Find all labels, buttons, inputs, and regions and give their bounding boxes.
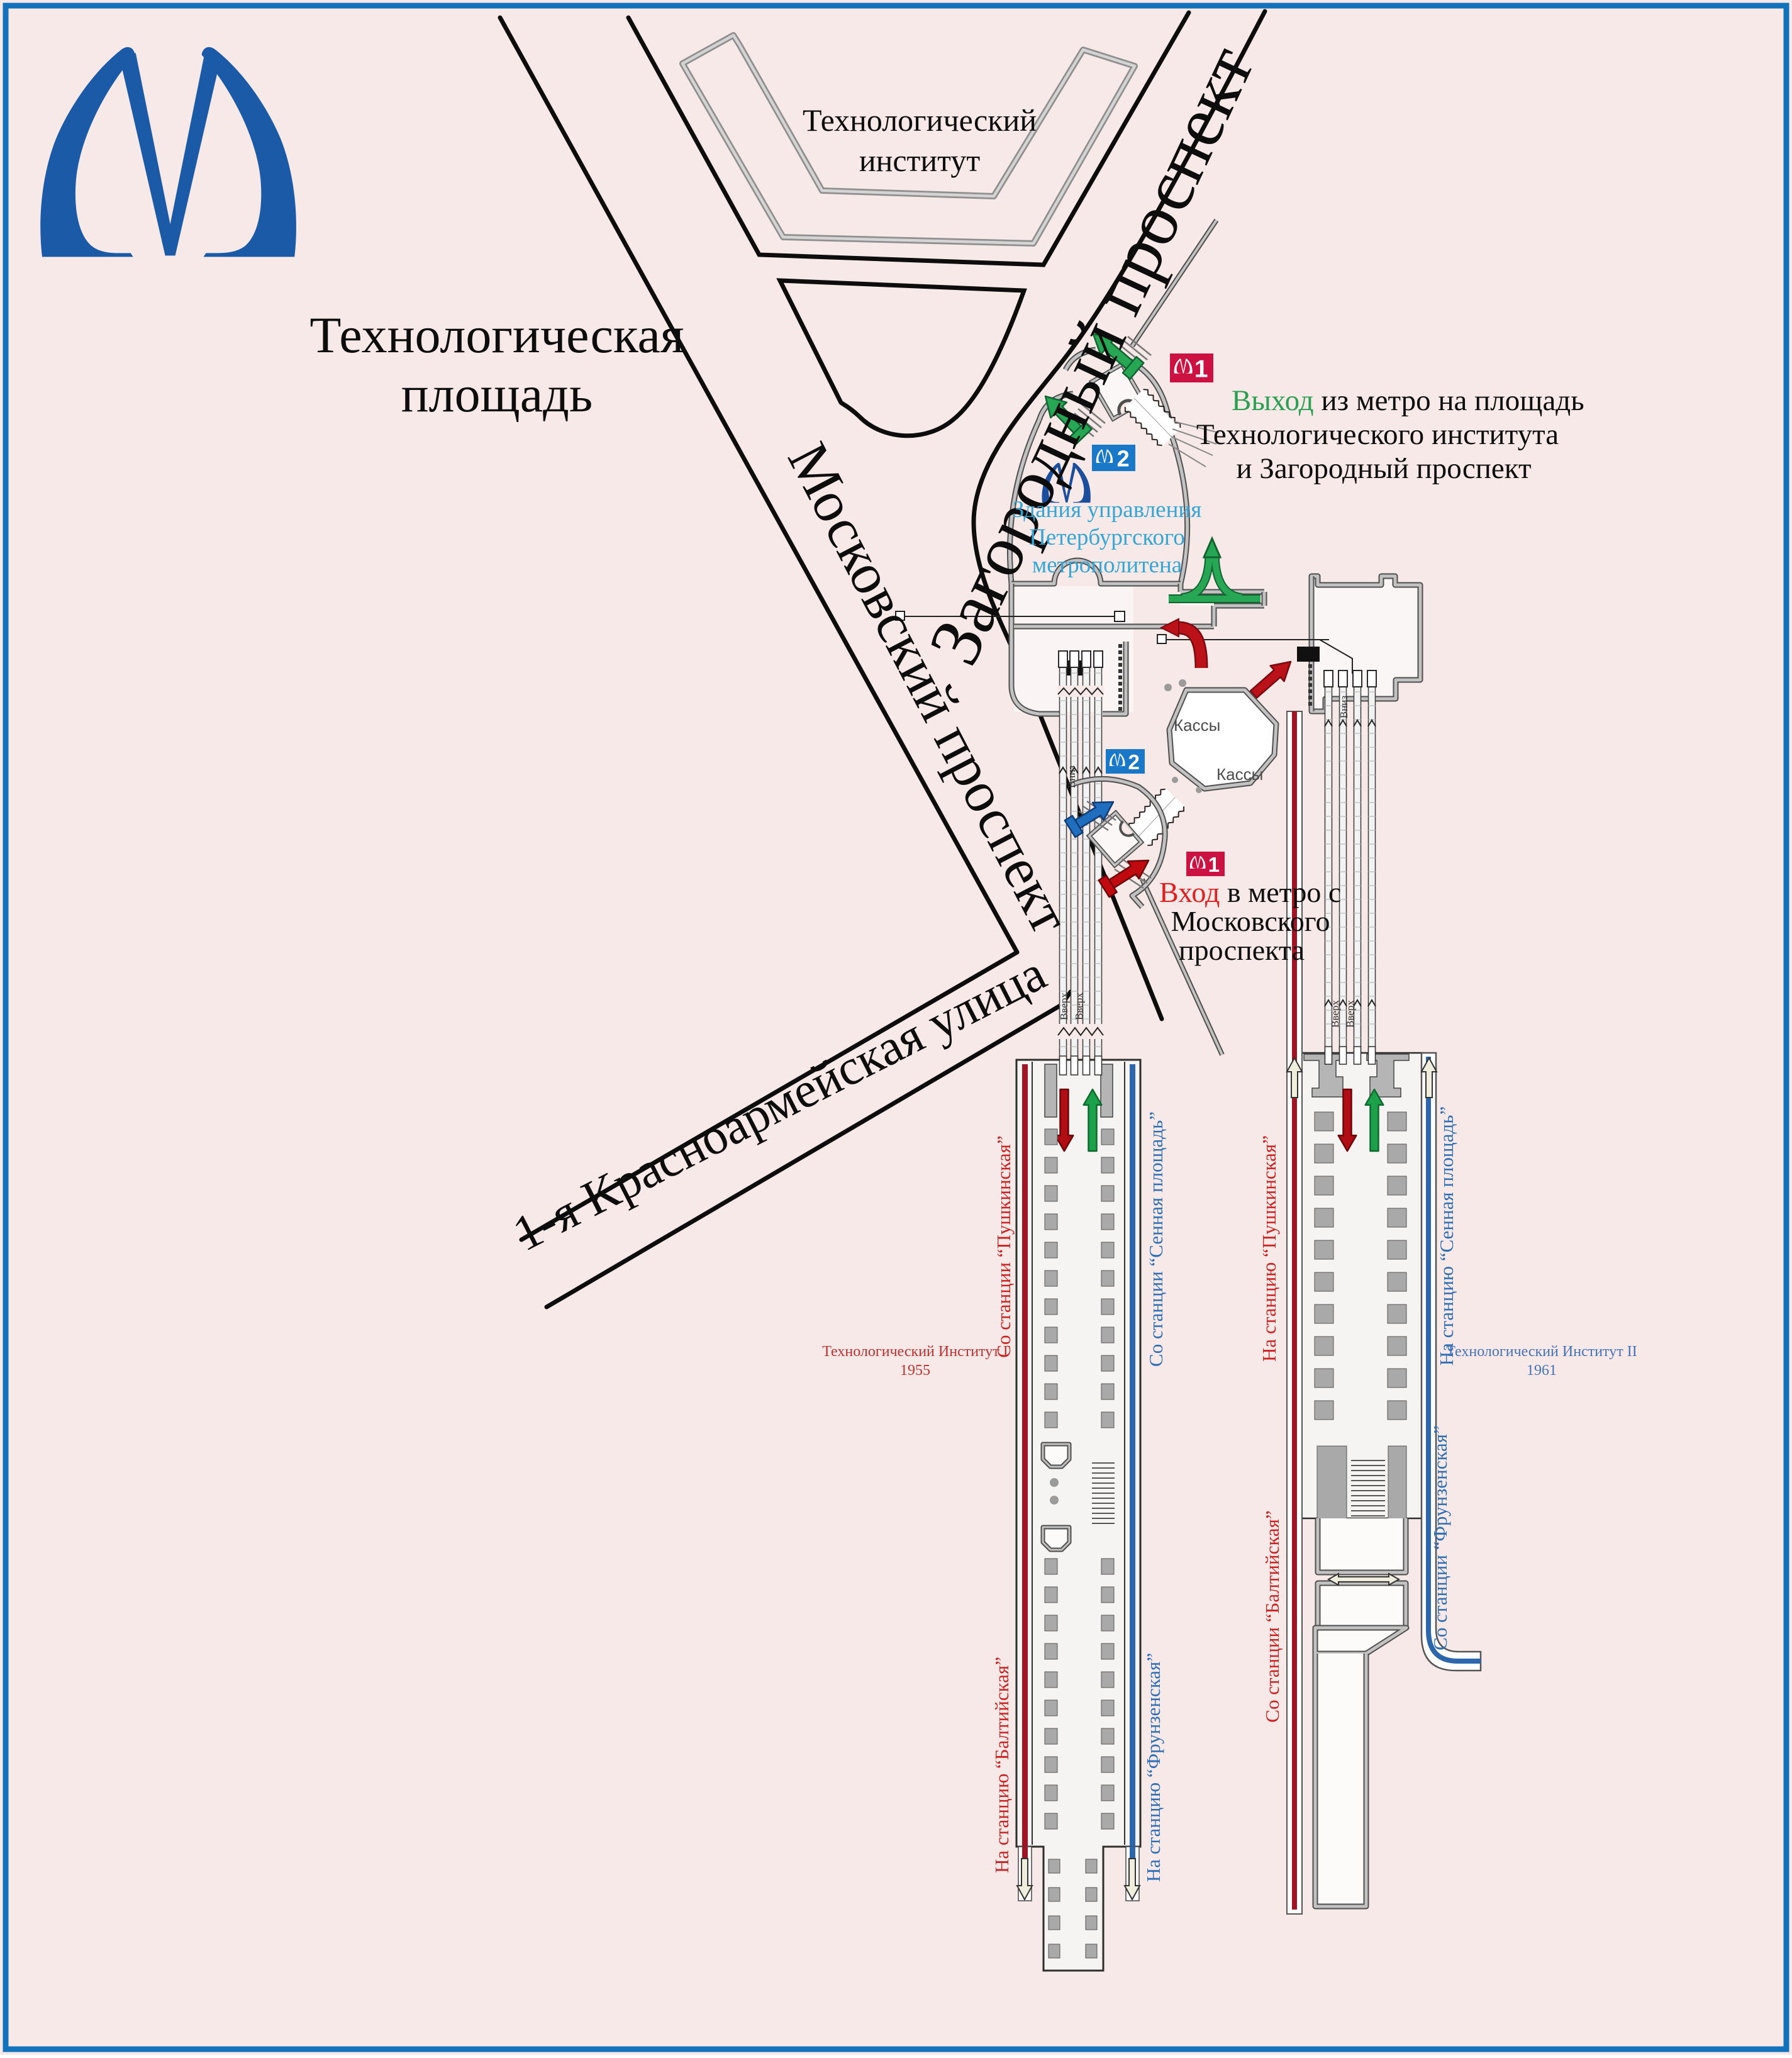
svg-text:Вниз: Вниз — [1066, 765, 1077, 789]
svg-text:1: 1 — [1194, 356, 1208, 383]
svg-text:Технологического института: Технологического института — [1196, 418, 1559, 451]
svg-text:Кассы: Кассы — [1216, 765, 1263, 784]
svg-text:Вверх: Вверх — [1058, 993, 1070, 1020]
svg-text:Технологическая: Технологическая — [309, 306, 684, 364]
svg-text:Петербургского: Петербургского — [1029, 525, 1185, 550]
svg-text:и Загородный проспект: и Загородный проспект — [1236, 452, 1531, 485]
svg-text:метрополитена: метрополитена — [1032, 552, 1182, 578]
svg-text:Технологический: Технологический — [803, 103, 1037, 138]
svg-text:институт: институт — [859, 143, 981, 178]
svg-text:Со станции “Пушкинская”: Со станции “Пушкинская” — [993, 1135, 1015, 1357]
svg-text:площадь: площадь — [401, 365, 593, 423]
svg-text:Со станции “Балтийская”: Со станции “Балтийская” — [1261, 1510, 1283, 1722]
svg-text:Выход из метро на площадь: Выход из метро на площадь — [1232, 384, 1584, 417]
svg-text:Со станции “Сенная площадь”: Со станции “Сенная площадь” — [1145, 1111, 1167, 1367]
svg-text:Вверх: Вверх — [1344, 1000, 1356, 1028]
svg-text:Московского: Московского — [1171, 905, 1330, 937]
svg-text:На станцию “Сенная площадь”: На станцию “Сенная площадь” — [1435, 1106, 1457, 1366]
svg-text:Кассы: Кассы — [1174, 716, 1220, 735]
svg-text:2: 2 — [1128, 750, 1139, 774]
svg-text:проспекта: проспекта — [1179, 934, 1305, 966]
svg-text:Со станции “Фрунзенская”: Со станции “Фрунзенская” — [1429, 1425, 1451, 1650]
svg-text:На станцию “Пушкинская”: На станцию “Пушкинская” — [1258, 1135, 1280, 1362]
svg-text:Технологический Институт I: Технологический Институт I — [822, 1343, 1008, 1360]
svg-text:2: 2 — [1117, 445, 1130, 471]
svg-text:Вверх: Вверх — [1329, 1000, 1341, 1028]
svg-text:1955: 1955 — [900, 1362, 930, 1379]
svg-text:На станцию “Фрунзенская”: На станцию “Фрунзенская” — [1142, 1653, 1164, 1882]
svg-text:1: 1 — [1208, 853, 1220, 876]
svg-text:На станцию “Балтийская”: На станцию “Балтийская” — [991, 1657, 1013, 1873]
svg-text:Вниз: Вниз — [1338, 696, 1350, 719]
svg-text:Вверх: Вверх — [1073, 993, 1085, 1020]
svg-text:Технологический Институт II: Технологический Институт II — [1446, 1343, 1637, 1360]
svg-text:Здания управления: Здания управления — [1013, 497, 1201, 523]
svg-text:1961: 1961 — [1527, 1362, 1557, 1379]
svg-text:Вход в метро с: Вход в метро с — [1159, 876, 1341, 908]
